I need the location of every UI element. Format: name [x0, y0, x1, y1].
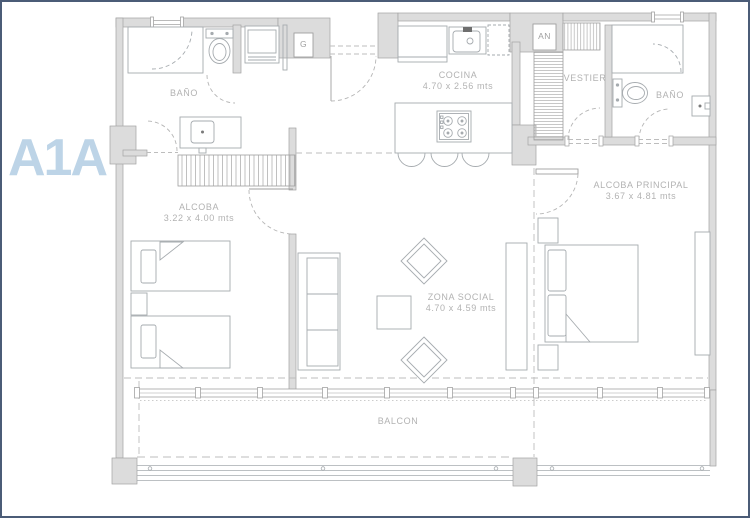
master-door-leaf	[536, 169, 578, 174]
room-dims-bedroom: 3.22 x 4.00 mts	[164, 212, 235, 224]
room-label-bathroom-right: BAÑO	[656, 89, 684, 101]
balcony-railing	[137, 466, 710, 481]
wall-sink	[692, 96, 710, 116]
master-bedroom-furniture	[538, 218, 710, 370]
room-label-balcony: BALCON	[378, 415, 419, 427]
toilet	[613, 79, 648, 107]
floor-plan-page: A1A G AN BAÑO COCINA 4.70 x 2.56 mts VES…	[0, 0, 750, 518]
laundry-unit	[245, 26, 279, 63]
vestier-door-swing	[568, 108, 600, 140]
room-dims-master-bedroom: 3.67 x 4.81 mts	[606, 190, 677, 202]
accent-chair-top	[401, 238, 447, 284]
shaft-label: AN	[538, 30, 551, 42]
floor-plan: A1A G AN BAÑO COCINA 4.70 x 2.56 mts VES…	[0, 0, 750, 518]
bedroom-closet	[178, 155, 295, 186]
accent-chair-bottom	[401, 337, 447, 383]
kitchen-sink	[449, 27, 486, 54]
nightstand	[538, 345, 558, 370]
bathroom-right-fixtures	[612, 25, 710, 116]
room-dims-kitchen: 4.70 x 2.56 mts	[423, 80, 494, 92]
fridge	[488, 25, 509, 55]
stove	[437, 111, 471, 142]
twin-bed-bottom	[131, 316, 230, 368]
master-door-swing	[536, 174, 578, 214]
twin-bed-top	[131, 241, 230, 291]
bathroom-left-door-swing	[207, 75, 235, 103]
bathroom-left-fixtures	[128, 25, 287, 153]
floor-plan-drawing	[0, 0, 750, 518]
bar-stools	[398, 153, 489, 167]
bedroom-door-swing	[249, 190, 293, 234]
linen-closet	[534, 52, 563, 140]
nightstand	[131, 293, 147, 315]
toilet	[206, 29, 233, 64]
bedroom-furniture	[131, 241, 230, 368]
balcony-columns	[513, 458, 537, 486]
unit-code: A1A	[8, 130, 106, 186]
upper-counter	[398, 26, 447, 62]
shower	[612, 25, 683, 73]
nightstand	[538, 218, 558, 243]
sofa	[298, 253, 340, 370]
kitchen-fixtures	[395, 25, 512, 167]
coffee-table	[377, 296, 411, 329]
bottom-windows	[135, 388, 710, 399]
vanity-sink	[180, 117, 241, 153]
vestier-closet	[563, 23, 600, 50]
tv-console	[506, 243, 527, 370]
bathroom-right-door-swing	[639, 109, 670, 140]
master-bed	[545, 245, 638, 342]
room-label-vestier: VESTIER	[564, 72, 607, 84]
gas-meter-label: G	[300, 38, 307, 50]
room-label-bathroom-left: BAÑO	[170, 87, 198, 99]
room-dims-living-area: 4.70 x 4.59 mts	[426, 302, 497, 314]
entry-door-swing	[331, 56, 376, 101]
wardrobe-cabinet	[695, 232, 710, 355]
bathroom-left-second-door-swing	[147, 121, 177, 151]
